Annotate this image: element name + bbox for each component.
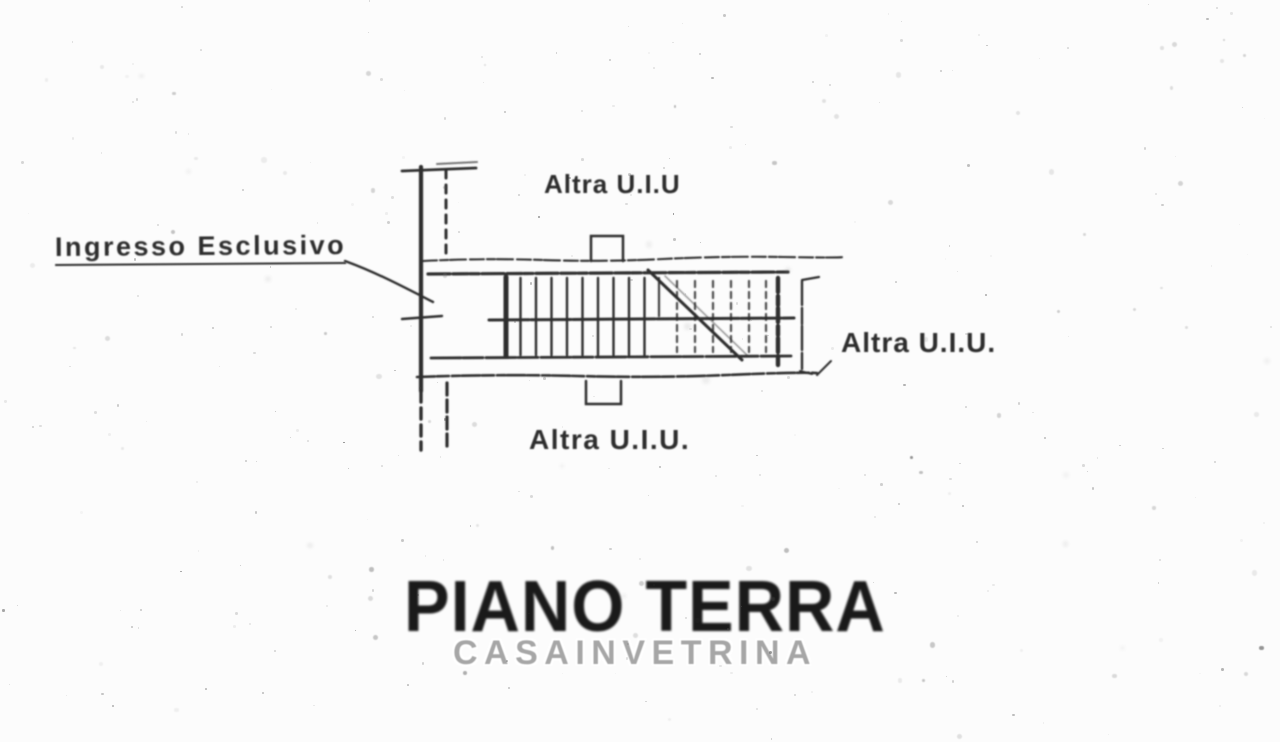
floor-title: PIANO TERRA: [404, 571, 886, 643]
entrance-label: Ingresso Esclusivo: [55, 232, 346, 266]
wall-bottom-outer-line: [417, 373, 817, 377]
wall-top: [423, 257, 843, 274]
door-opening-top: [591, 236, 623, 261]
watermark: CASAINVETRINA: [453, 636, 817, 670]
staircase: [489, 270, 794, 367]
unit-label-top: Altra U.I.U: [544, 171, 681, 197]
scanned-floor-plan-page: Ingresso Esclusivo Altra U.I.U Altra U.I…: [0, 0, 1280, 742]
wall-top-outer-line: [423, 257, 843, 261]
stair-treads: [521, 278, 767, 355]
wall-top-inner-line: [428, 272, 788, 274]
wall-bottom: [417, 356, 831, 377]
unit-label-bottom: Altra U.I.U.: [529, 426, 690, 454]
wall-right: [800, 277, 819, 374]
unit-label-right: Altra U.I.U.: [841, 329, 996, 357]
wall-left: [402, 162, 477, 450]
door-opening-bottom: [586, 381, 621, 404]
